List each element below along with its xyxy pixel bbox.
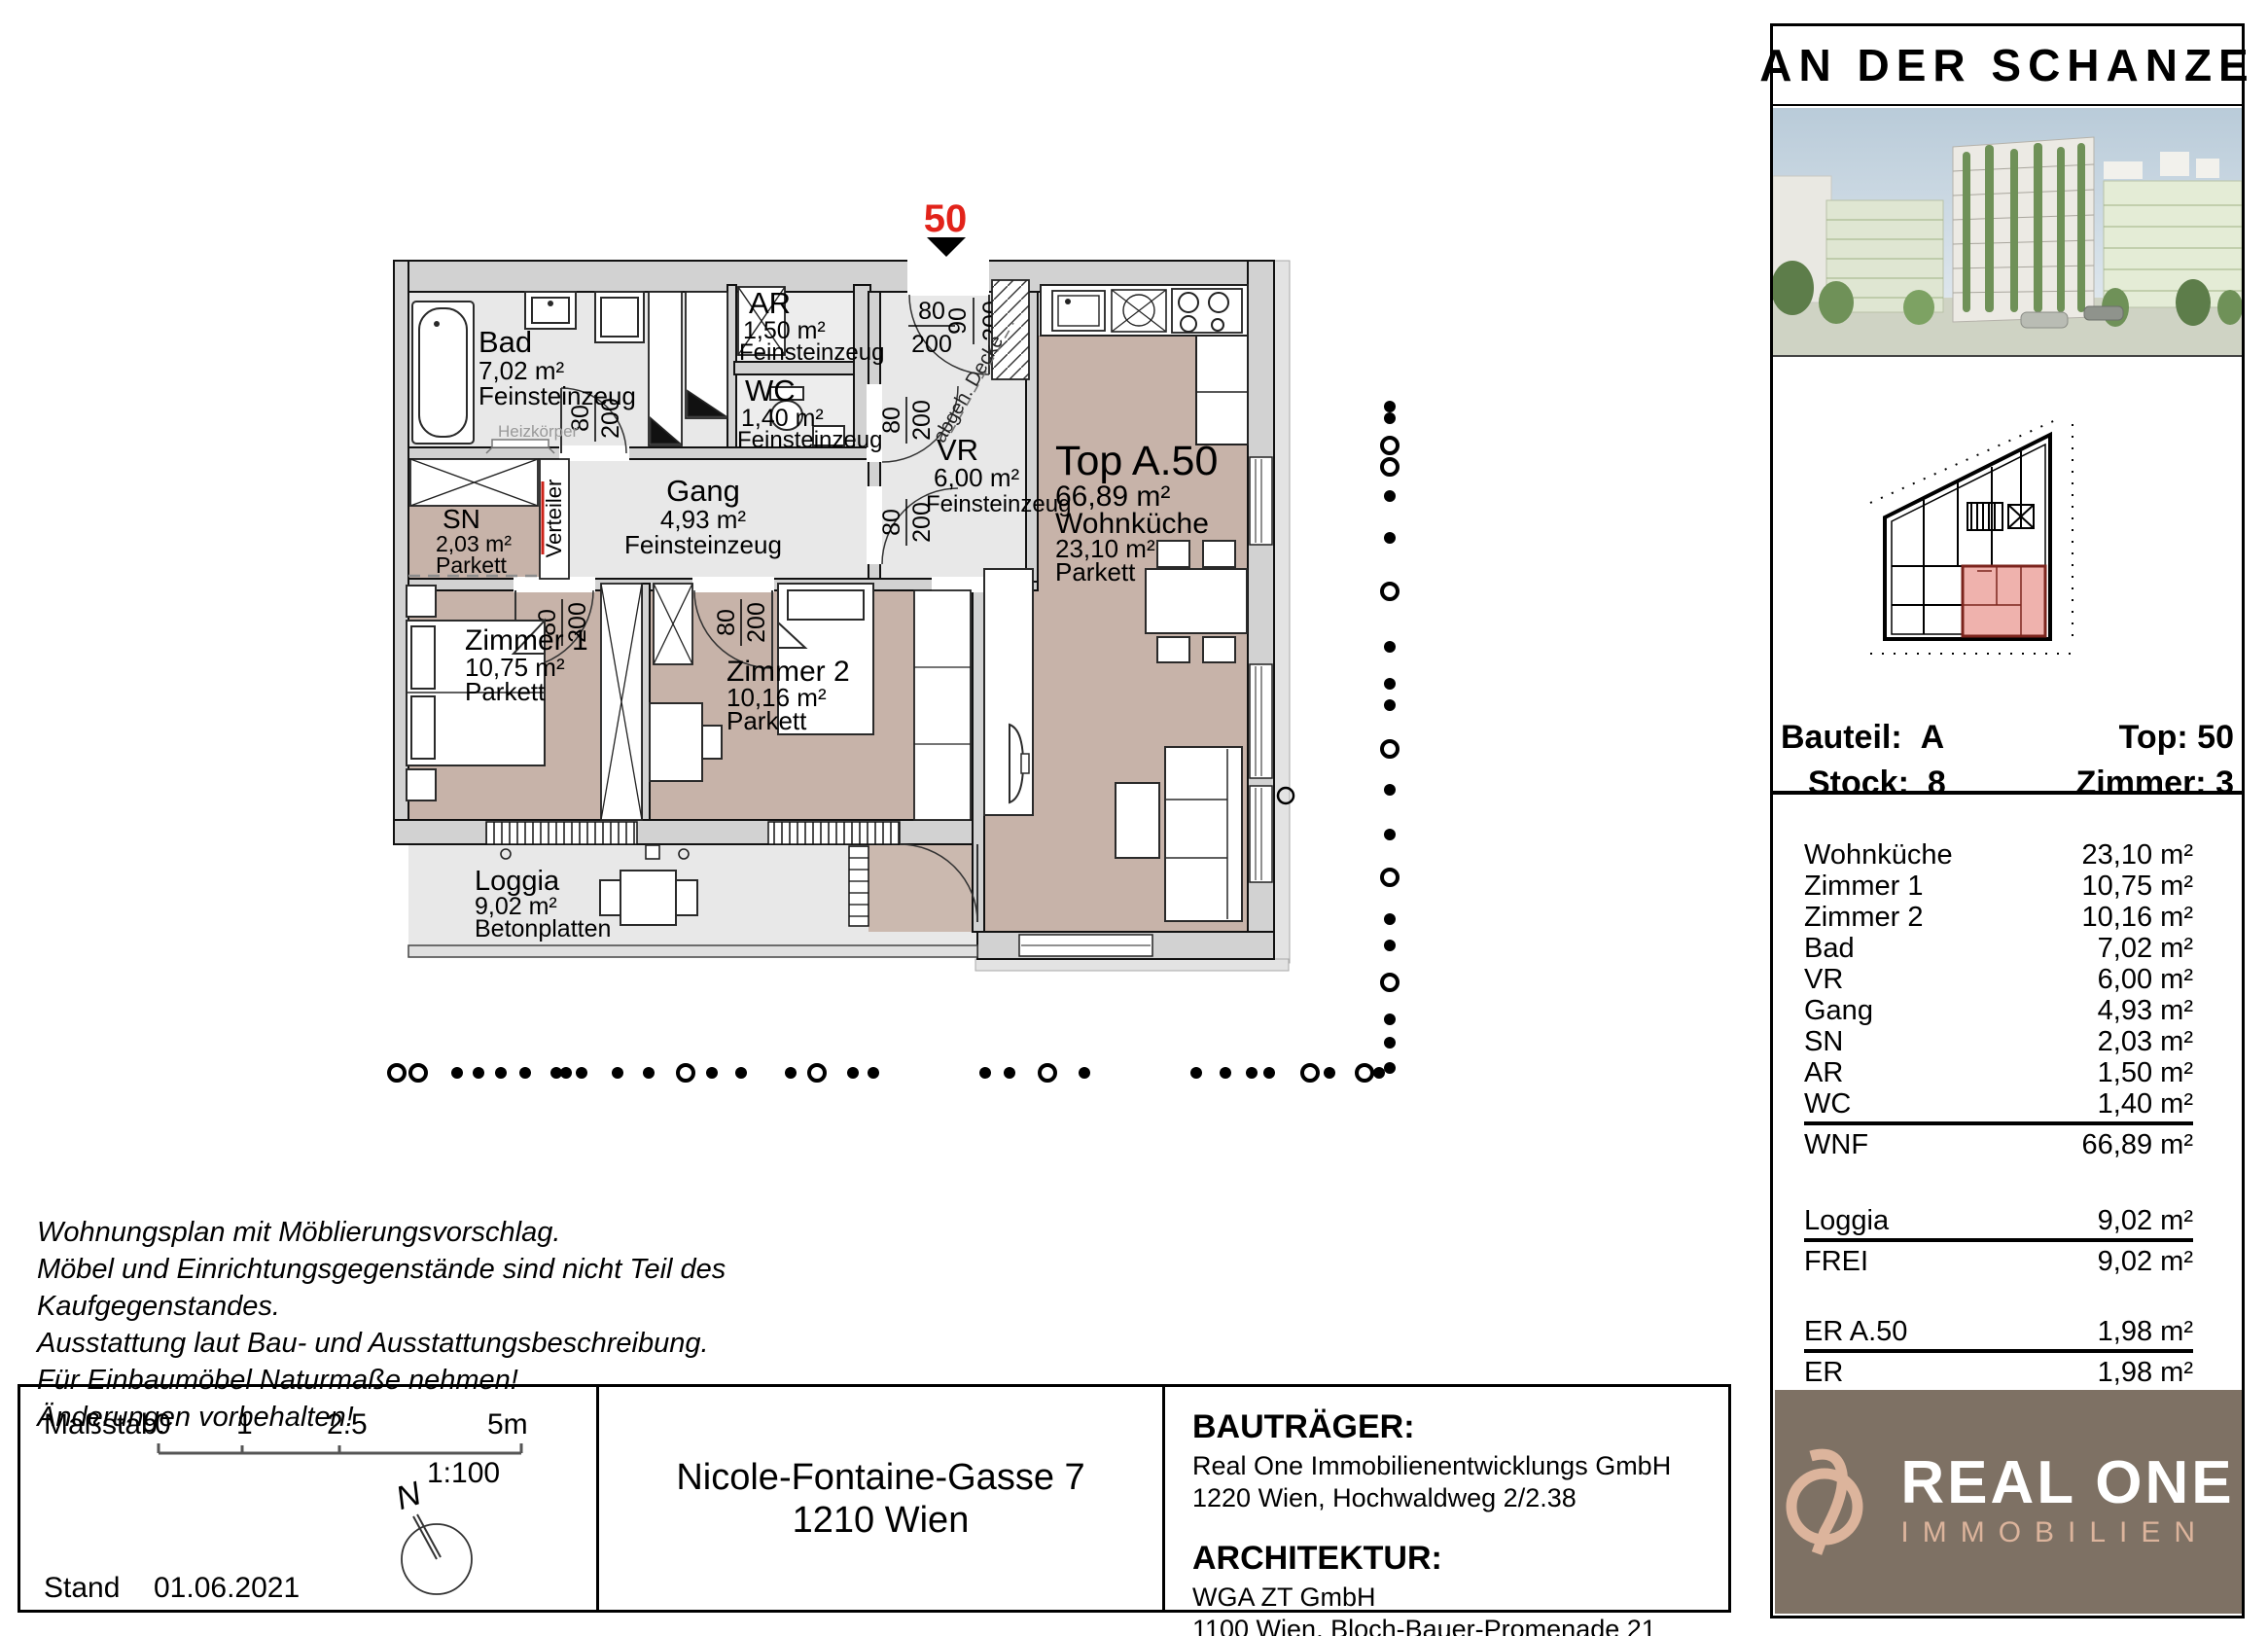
stove-icon <box>1172 289 1242 333</box>
coffee-table-icon <box>1116 783 1159 858</box>
svg-text:Betonplatten: Betonplatten <box>475 915 611 942</box>
loggia-divider <box>849 846 868 926</box>
address-line2: 1210 Wien <box>793 1499 970 1542</box>
key-plan-highlighted-unit <box>1963 566 2045 636</box>
developer-address: 1220 Wien, Hochwaldweg 2/2.38 <box>1192 1483 1577 1512</box>
sofa-icon <box>1165 747 1242 921</box>
shaft-icon <box>601 584 642 820</box>
top-value: 50 <box>2197 719 2234 756</box>
svg-text:Feinsteinzeug: Feinsteinzeug <box>624 530 782 559</box>
svg-text:0: 0 <box>155 1408 171 1440</box>
svg-text:WC: WC <box>745 373 796 408</box>
loggia-light <box>646 845 659 859</box>
logo-name: REAL ONE <box>1900 1454 2234 1512</box>
dishwasher-icon <box>1112 290 1166 332</box>
main-building <box>1953 137 2094 322</box>
table-row: Zimmer 210,16 m² <box>1804 902 2193 933</box>
svg-text:2.5: 2.5 <box>327 1408 368 1440</box>
architect-heading: ARCHITEKTUR: <box>1192 1540 1728 1578</box>
svg-text:AR: AR <box>749 286 791 320</box>
svg-text:Top A.50: Top A.50 <box>1055 438 1218 484</box>
svg-text:Feinsteinzeug: Feinsteinzeug <box>926 491 1071 517</box>
washing-machine-icon <box>595 292 644 342</box>
svg-text:80: 80 <box>878 509 905 536</box>
svg-text:80: 80 <box>713 609 740 636</box>
car-2 <box>2084 306 2123 320</box>
real-one-logo: REAL ONE IMMOBILIEN <box>1775 1390 2242 1614</box>
table-row: Loggia9,02 m² <box>1804 1205 2193 1236</box>
svg-text:80: 80 <box>918 298 945 325</box>
table-sum-line <box>1804 1238 2193 1242</box>
svg-text:Feinsteinzeug: Feinsteinzeug <box>739 339 884 366</box>
tv-cabinet-icon <box>984 569 1033 815</box>
table-row: Bad7,02 m² <box>1804 933 2193 964</box>
table-row-er: ER1,98 m² <box>1804 1357 2193 1388</box>
developer-name: Real One Immobilienentwicklungs GmbH <box>1192 1451 1671 1480</box>
project-title: AN DER SCHANZE <box>1773 26 2242 106</box>
svg-text:90: 90 <box>944 307 972 335</box>
svg-text:Feinsteinzeug: Feinsteinzeug <box>478 381 636 410</box>
stand-label: Stand <box>44 1572 120 1605</box>
table-row: Wohnküche23,10 m² <box>1804 839 2193 871</box>
architect-name: WGA ZT GmbH <box>1192 1583 1376 1612</box>
table-row: Gang4,93 m² <box>1804 995 2193 1026</box>
logo-sub: IMMOBILIEN <box>1900 1516 2234 1549</box>
z2-builtin-cabinet <box>914 590 971 820</box>
entrance-marker-number: 50 <box>924 197 968 240</box>
unit-info: Bauteil: A Top: 50 Stock: 8 Zimmer: 3 <box>1781 719 2234 810</box>
bathtub-icon <box>412 302 474 444</box>
verteiler-cabinet: Verteiler <box>540 459 569 579</box>
area-table: Wohnküche23,10 m² Zimmer 110,75 m² Zimme… <box>1804 839 2193 1388</box>
svg-text:Parkett: Parkett <box>436 552 507 578</box>
right-building <box>2104 181 2242 307</box>
stand-date: 01.06.2021 <box>154 1572 300 1605</box>
title-block: Maßstab: 0 1 2.5 5m 1:100 N Stand 01.06.… <box>18 1384 1731 1613</box>
entrance-marker-triangle-icon <box>927 237 966 257</box>
svg-text:200: 200 <box>743 602 770 643</box>
entrance-opening <box>907 257 989 296</box>
slab-edge-right <box>1274 261 1290 963</box>
top-label: Top: <box>2119 719 2188 756</box>
table-row: AR1,50 m² <box>1804 1057 2193 1088</box>
building-photo <box>1773 108 2242 357</box>
real-one-logo-icon <box>1782 1439 1879 1565</box>
table-row: Zimmer 110,75 m² <box>1804 871 2193 902</box>
svg-text:SN: SN <box>443 504 480 534</box>
z2-wardrobe-icon <box>654 584 692 664</box>
svg-text:Heizkörper: Heizkörper <box>498 422 579 441</box>
table-row: SN2,03 m² <box>1804 1026 2193 1057</box>
sn-wardrobe-icon <box>410 459 538 506</box>
loggia-window-2 <box>768 822 900 844</box>
svg-text:Parkett: Parkett <box>465 677 546 706</box>
table-sum-line <box>1804 1121 2193 1125</box>
sink-icon <box>525 292 576 329</box>
compass-icon: N <box>371 1479 497 1606</box>
floor-plan-drawing: 50 80200 80200 80200 80200 80200 80200 9… <box>0 0 1517 1216</box>
zimmer-label: Zimmer: <box>2075 765 2206 801</box>
table-row-frei: FREI9,02 m² <box>1804 1246 2193 1277</box>
table-row: VR6,00 m² <box>1804 964 2193 995</box>
svg-text:Feinsteinzeug: Feinsteinzeug <box>737 427 882 453</box>
loggia-right-section <box>868 844 977 932</box>
car <box>2021 312 2068 328</box>
stock-label: Stock: <box>1808 765 1909 801</box>
svg-text:N: N <box>391 1479 426 1517</box>
scale-box: Maßstab: 0 1 2.5 5m 1:100 N Stand 01.06.… <box>20 1387 599 1610</box>
svg-text:Bad: Bad <box>478 325 532 359</box>
table-row-wnf: WNF66,89 m² <box>1804 1129 2193 1160</box>
svg-text:Gang: Gang <box>666 474 740 508</box>
key-plan <box>1812 410 2201 722</box>
loggia-edge <box>408 945 977 957</box>
bauteil-value: A <box>1921 719 1945 756</box>
floorplan-sheet: 50 80200 80200 80200 80200 80200 80200 9… <box>0 0 2268 1636</box>
architect-address: 1100 Wien, Bloch-Bauer-Promenade 21 <box>1192 1615 1656 1636</box>
window-right-wall <box>1250 457 1272 882</box>
address-box: Nicole-Fontaine-Gasse 7 1210 Wien <box>599 1387 1165 1610</box>
developer-heading: BAUTRÄGER: <box>1192 1408 1728 1446</box>
zimmer-value: 3 <box>2215 765 2234 801</box>
svg-text:Parkett: Parkett <box>1055 557 1136 587</box>
vr-wardrobe-icon <box>992 280 1029 379</box>
svg-text:VR: VR <box>937 433 978 467</box>
divider <box>1773 791 2242 795</box>
svg-text:1: 1 <box>236 1408 253 1440</box>
loggia-window-1 <box>486 822 637 844</box>
svg-text:Verteiler: Verteiler <box>542 480 566 558</box>
address-line1: Nicole-Fontaine-Gasse 7 <box>676 1456 1084 1499</box>
developer-box: BAUTRÄGER: Real One Immobilienentwicklun… <box>1165 1387 1728 1610</box>
table-row: ER A.501,98 m² <box>1804 1316 2193 1347</box>
table-sum-line <box>1804 1349 2193 1353</box>
svg-text:5m: 5m <box>487 1408 528 1440</box>
slab-edge-bottom <box>975 959 1289 971</box>
stock-value: 8 <box>1928 765 1946 801</box>
svg-text:Parkett: Parkett <box>726 706 807 735</box>
svg-text:6,00 m²: 6,00 m² <box>934 463 1019 492</box>
project-panel: AN DER SCHANZE <box>1770 23 2245 1618</box>
kitchen-sink-icon <box>1052 291 1105 331</box>
table-row: WC1,40 m² <box>1804 1088 2193 1120</box>
bauteil-label: Bauteil: <box>1781 719 1902 756</box>
